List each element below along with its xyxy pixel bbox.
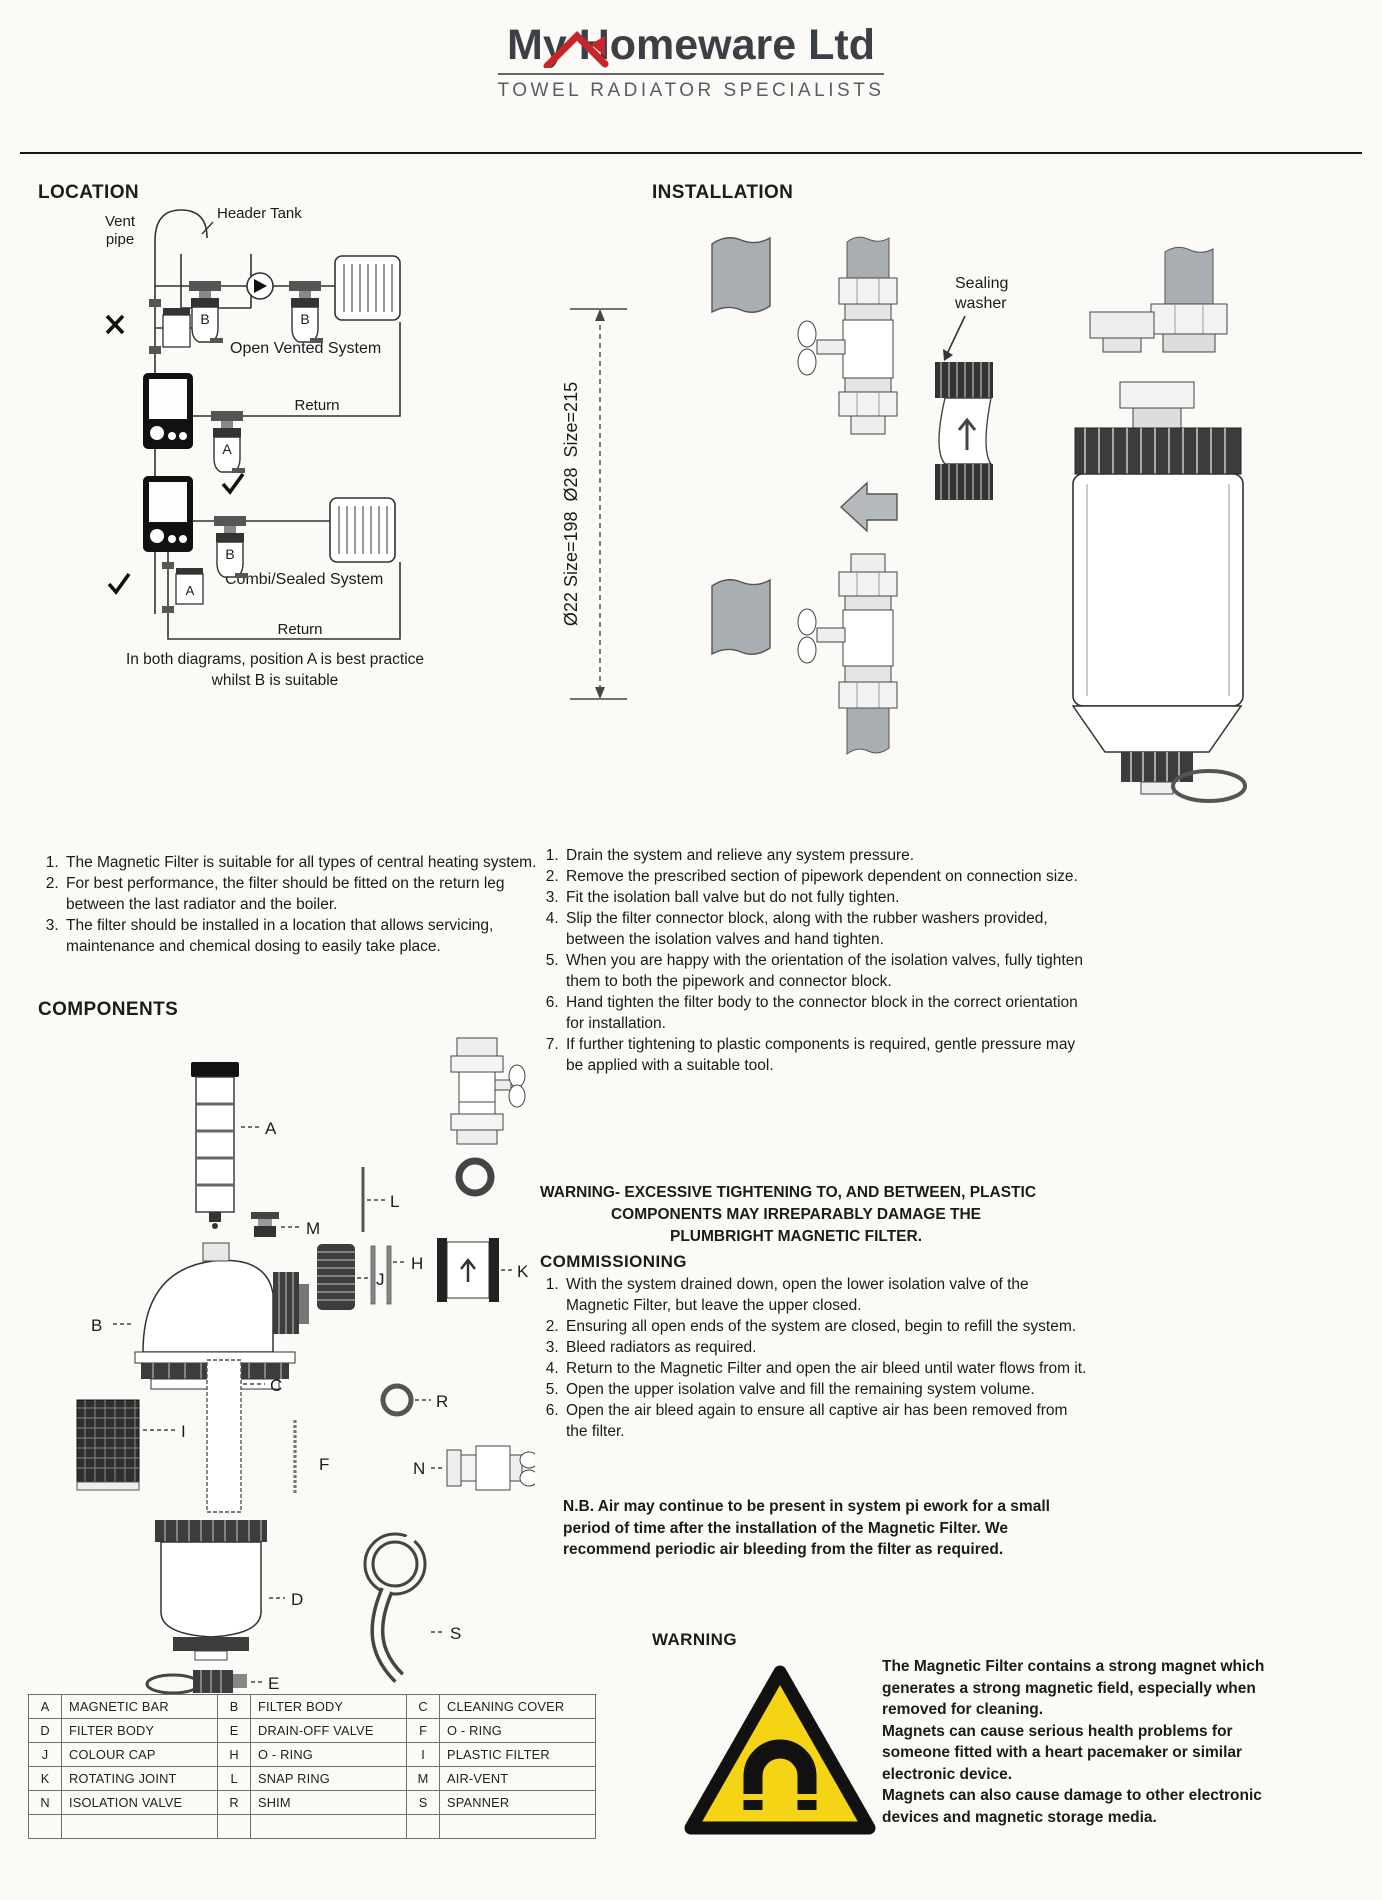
part-letter: M (407, 1767, 440, 1791)
label-c: C (270, 1376, 282, 1395)
filter-body-part-d (155, 1520, 267, 1660)
boiler-2 (143, 476, 193, 552)
installation-step: Hand tighten the filter body to the conn… (563, 992, 1091, 1034)
return-top-label: Return (294, 397, 339, 414)
vent-pipe-label-2: pipe (106, 231, 134, 248)
isolation-valve-part-top (451, 1038, 525, 1144)
components-title: COMPONENTS (38, 999, 178, 1021)
commissioning-step: Bleed radiators as required. (563, 1337, 1091, 1358)
part-name: FILTER BODY (251, 1695, 407, 1719)
part-letter: J (29, 1743, 62, 1767)
label-m: M (306, 1219, 320, 1238)
label-f: F (319, 1455, 329, 1474)
installation-step: When you are happy with the orientation … (563, 950, 1091, 992)
air-vent-part (251, 1212, 279, 1237)
magnet-warning-icon (680, 1658, 880, 1848)
filter-letter-b1: B (200, 311, 209, 327)
commissioning-step: With the system drained down, open the l… (563, 1274, 1091, 1316)
part-name: O - RING (251, 1743, 407, 1767)
warning-line: WARNING- EXCESSIVE TIGHTENING TO, AND BE… (540, 1182, 1052, 1204)
part-letter: H (218, 1743, 251, 1767)
dimension-text: Ø22 Size=198 Ø28 Size=215 (561, 382, 581, 626)
label-h: H (411, 1254, 423, 1273)
label-b: B (91, 1316, 102, 1335)
part-letter (407, 1815, 440, 1839)
part-letter: C (407, 1695, 440, 1719)
table-row: JCOLOUR CAPHO - RINGIPLASTIC FILTER (29, 1743, 596, 1767)
warning-magnet-text: The Magnetic Filter contains a strong ma… (882, 1656, 1302, 1828)
part-name: FILTER BODY (62, 1719, 218, 1743)
part-name: SNAP RING (251, 1767, 407, 1791)
isolation-valve-upper (798, 237, 897, 434)
commissioning-step: Return to the Magnetic Filter and open t… (563, 1358, 1091, 1379)
brand-tagline: TOWEL RADIATOR SPECIALISTS (498, 73, 885, 102)
label-k: K (517, 1262, 529, 1281)
part-letter: L (218, 1767, 251, 1791)
part-name: SHIM (251, 1791, 407, 1815)
rotating-joint-part (437, 1238, 499, 1302)
label-j: J (376, 1270, 385, 1289)
installation-step: Drain the system and relieve any system … (563, 845, 1091, 866)
part-letter: I (407, 1743, 440, 1767)
location-note: The filter should be installed in a loca… (63, 915, 541, 957)
location-caption: In both diagrams, position A is best pra… (60, 649, 490, 691)
installation-diagram: Ø22 Size=198 Ø28 Size=215 (545, 224, 1250, 806)
sealing-washer-label-2: washer (954, 295, 1007, 312)
part-name (440, 1815, 596, 1839)
vent-pipe-label-1: Vent (105, 213, 136, 230)
sealing-washer-assembly (935, 362, 993, 500)
commissioning-step: Ensuring all open ends of the system are… (563, 1316, 1091, 1337)
part-letter: F (407, 1719, 440, 1743)
logo: My Homeware Ltd TOWEL RADIATOR SPECIALIS… (0, 24, 1382, 102)
label-i: I (181, 1422, 186, 1441)
location-diagram: Vent pipe Header Tank Open Vented System… (55, 196, 485, 648)
sealing-washer-label-1: Sealing (955, 275, 1008, 292)
warning-line: PLUMBRIGHT MAGNETIC FILTER. (540, 1226, 1052, 1248)
installation-step: Fit the isolation ball valve but do not … (563, 887, 1091, 908)
installation-title: INSTALLATION (652, 182, 793, 204)
o-ring-part-top (459, 1161, 491, 1193)
commissioning-steps: With the system drained down, open the l… (540, 1274, 1091, 1442)
warning-magnet-title: WARNING (652, 1630, 737, 1650)
part-letter: K (29, 1767, 62, 1791)
part-name: COLOUR CAP (62, 1743, 218, 1767)
colour-cap-part (317, 1244, 355, 1310)
filter-letter-b2: B (300, 311, 309, 327)
part-name: CLEANING COVER (440, 1695, 596, 1719)
commissioning-title: COMMISSIONING (540, 1252, 687, 1272)
filter-letter-a2: A (186, 583, 195, 598)
caption-line-2: whilst B is suitable (60, 670, 490, 691)
label-e: E (268, 1674, 279, 1693)
drain-off-valve-part (147, 1670, 247, 1693)
label-l: L (390, 1192, 399, 1211)
brand-name: My Homeware Ltd (0, 24, 1382, 67)
commissioning-step: Open the air bleed again to ensure all c… (563, 1400, 1091, 1442)
part-name: SPANNER (440, 1791, 596, 1815)
radiator-2 (330, 498, 395, 562)
radiator-1 (335, 256, 400, 320)
installation-steps: Drain the system and relieve any system … (540, 845, 1091, 1076)
combi-sealed-label: Combi/Sealed System (225, 571, 383, 588)
document-page: My Homeware Ltd TOWEL RADIATOR SPECIALIS… (0, 0, 1382, 1900)
part-letter: N (29, 1791, 62, 1815)
nb-note: N.B. Air may continue to be present in s… (563, 1496, 1071, 1561)
table-row: NISOLATION VALVERSHIMSSPANNER (29, 1791, 596, 1815)
part-letter: S (407, 1791, 440, 1815)
installation-step: Slip the filter connector block, along w… (563, 908, 1091, 950)
magnetic-bar-part (191, 1062, 239, 1229)
part-name: O - RING (440, 1719, 596, 1743)
installation-step: Remove the prescribed section of pipewor… (563, 866, 1091, 887)
table-row (29, 1815, 596, 1839)
roof-icon (539, 26, 619, 68)
part-name: MAGNETIC BAR (62, 1695, 218, 1719)
part-letter: A (29, 1695, 62, 1719)
insert-arrow-icon (841, 483, 897, 531)
part-letter: B (218, 1695, 251, 1719)
warning-tightening: WARNING- EXCESSIVE TIGHTENING TO, AND BE… (540, 1182, 1052, 1248)
header-divider (20, 152, 1362, 154)
magnetic-filter-body (1073, 247, 1245, 801)
boiler-1 (143, 373, 193, 449)
shim-part (383, 1386, 411, 1414)
part-letter: D (29, 1719, 62, 1743)
spanner-part (369, 1528, 421, 1678)
location-note: The Magnetic Filter is suitable for all … (63, 852, 541, 873)
x-mark (107, 316, 123, 333)
label-s: S (450, 1624, 461, 1643)
header-tank-label: Header Tank (217, 205, 302, 222)
label-r: R (436, 1392, 448, 1411)
part-name: AIR-VENT (440, 1767, 596, 1791)
part-letter (218, 1815, 251, 1839)
components-diagram: A M L J (55, 1032, 535, 1710)
part-letter: E (218, 1719, 251, 1743)
caption-line-1: In both diagrams, position A is best pra… (60, 649, 490, 670)
pipe-stub-top (712, 238, 770, 313)
pipe-stub-bottom (712, 580, 770, 655)
table-row: AMAGNETIC BARBFILTER BODYCCLEANING COVER (29, 1695, 596, 1719)
commissioning-step: Open the upper isolation valve and fill … (563, 1379, 1091, 1400)
return-bottom-label: Return (277, 621, 322, 638)
table-row: DFILTER BODYEDRAIN-OFF VALVEFO - RING (29, 1719, 596, 1743)
table-row: KROTATING JOINTLSNAP RINGMAIR-VENT (29, 1767, 596, 1791)
cleaning-cover-part (207, 1360, 241, 1512)
label-a: A (265, 1119, 277, 1138)
warning-paragraph: Magnets can also cause damage to other e… (882, 1785, 1302, 1828)
label-n: N (413, 1459, 425, 1478)
location-note: For best performance, the filter should … (63, 873, 541, 915)
pump-icon (247, 273, 273, 299)
part-name (251, 1815, 407, 1839)
label-d: D (291, 1590, 303, 1609)
part-name: PLASTIC FILTER (440, 1743, 596, 1767)
check-mark (223, 474, 243, 492)
filter-letter-b3: B (225, 546, 234, 562)
sealing-washer-leader (943, 316, 965, 361)
warning-paragraph: The Magnetic Filter contains a strong ma… (882, 1656, 1302, 1721)
check-mark (109, 574, 129, 592)
parts-table: AMAGNETIC BARBFILTER BODYCCLEANING COVER… (28, 1694, 596, 1839)
plastic-filter-part (77, 1400, 139, 1490)
isolation-valve-lower (798, 554, 897, 754)
part-letter (29, 1815, 62, 1839)
isolation-valve-part-n: N (413, 1446, 535, 1490)
part-name: ROTATING JOINT (62, 1767, 218, 1791)
warning-line: COMPONENTS MAY IRREPARABLY DAMAGE THE (540, 1204, 1052, 1226)
location-notes: The Magnetic Filter is suitable for all … (40, 852, 541, 957)
header-tank-leader (202, 222, 213, 234)
part-name: DRAIN-OFF VALVE (251, 1719, 407, 1743)
part-name (62, 1815, 218, 1839)
warning-paragraph: Magnets can cause serious health problem… (882, 1721, 1302, 1786)
part-name: ISOLATION VALVE (62, 1791, 218, 1815)
part-letter: R (218, 1791, 251, 1815)
installation-step: If further tightening to plastic compone… (563, 1034, 1091, 1076)
filter-letter-a1: A (222, 441, 232, 457)
